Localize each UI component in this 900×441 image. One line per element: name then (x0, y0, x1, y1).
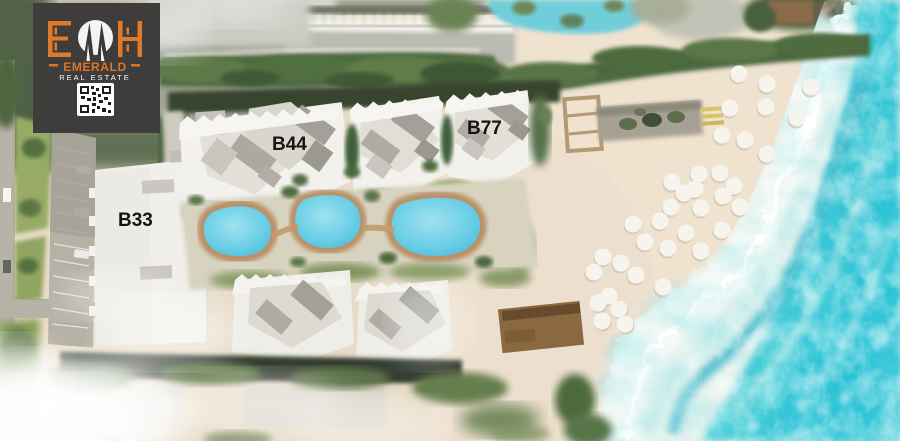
svg-text:B44: B44 (272, 134, 307, 155)
svg-text:EMERALD: EMERALD (63, 60, 127, 74)
svg-text:B77: B77 (467, 118, 502, 139)
svg-text:REAL ESTATE: REAL ESTATE (59, 73, 130, 82)
svg-text:B33: B33 (118, 210, 153, 231)
